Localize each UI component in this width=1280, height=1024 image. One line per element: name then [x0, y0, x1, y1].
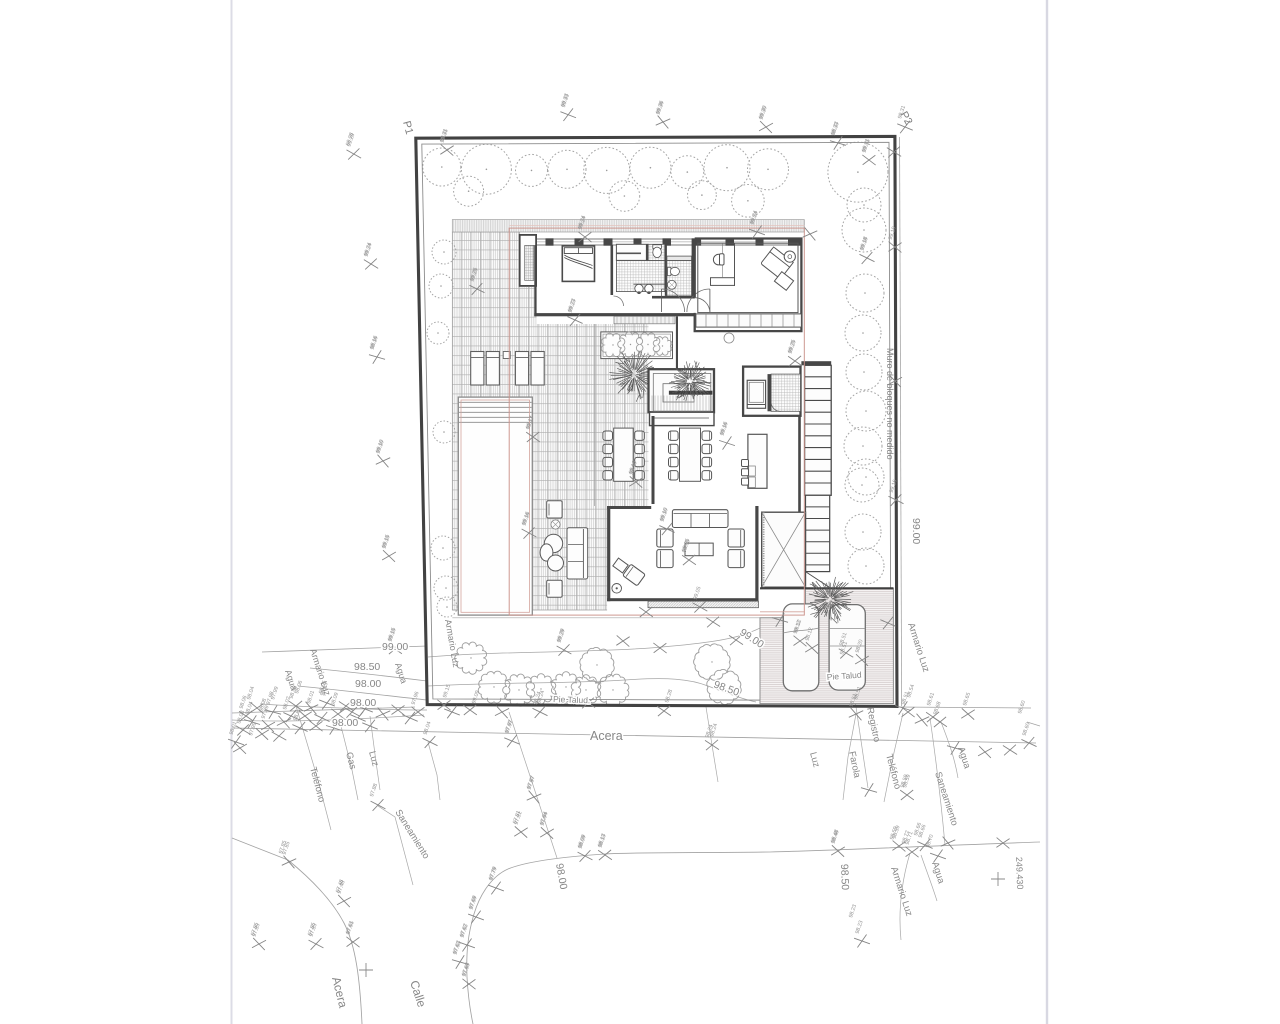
svg-text:99.00: 99.00: [382, 641, 408, 653]
svg-text:249.430: 249.430: [1014, 857, 1025, 890]
svg-text:Acera: Acera: [590, 729, 623, 743]
svg-text:98.00: 98.00: [350, 697, 376, 709]
svg-text:Pie Talud.: Pie Talud.: [553, 694, 591, 705]
svg-text:98.00: 98.00: [355, 678, 381, 690]
svg-text:Muro de bloques no medido: Muro de bloques no medido: [885, 348, 895, 460]
svg-text:98.00: 98.00: [332, 717, 358, 729]
svg-text:99.00: 99.00: [910, 518, 922, 544]
svg-text:98.50: 98.50: [354, 661, 380, 673]
svg-text:98.50: 98.50: [838, 864, 851, 891]
